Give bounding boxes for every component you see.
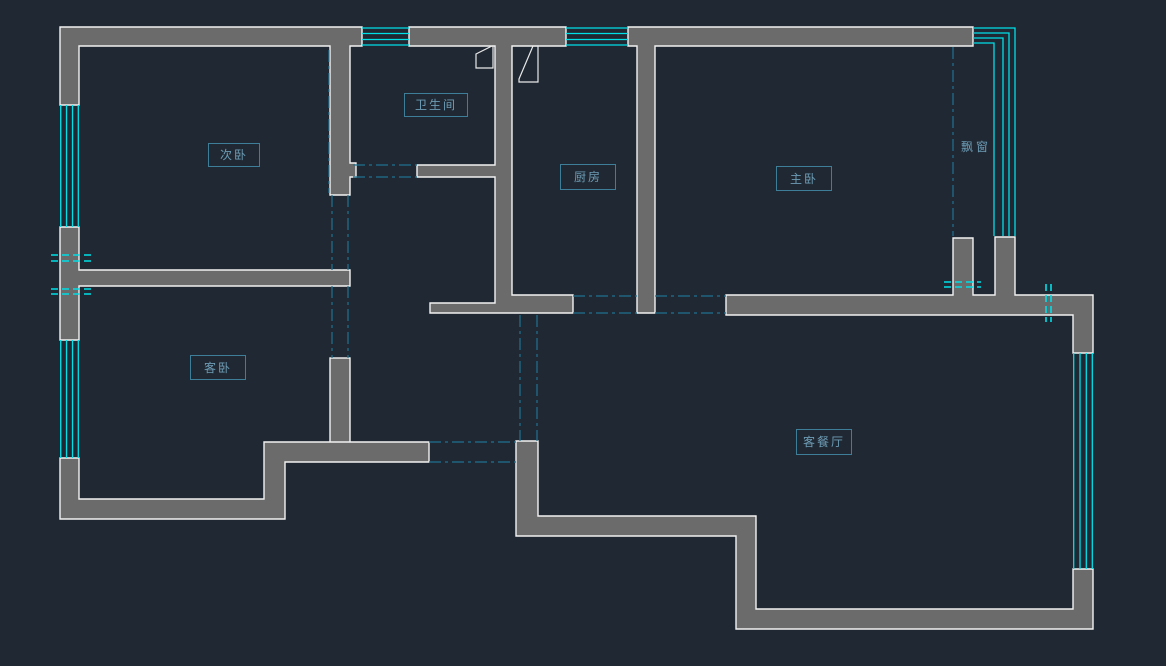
window-bay-master[interactable] bbox=[973, 28, 1015, 236]
wall-master-bottom[interactable] bbox=[726, 237, 1093, 353]
wall-living-bottom[interactable] bbox=[516, 441, 1093, 629]
wall-left-mid[interactable] bbox=[60, 227, 350, 340]
room-label-living-dining[interactable]: 客餐厅 bbox=[796, 429, 852, 455]
casement-symbol-bathroom bbox=[476, 46, 493, 68]
wall-bathroom-kitchen[interactable] bbox=[409, 27, 573, 313]
room-label-kitchen[interactable]: 厨房 bbox=[560, 164, 616, 190]
room-label-bay-window[interactable]: 飘窗 bbox=[958, 138, 994, 156]
casement-symbol-kitchen bbox=[519, 46, 538, 82]
room-label-master-bedroom[interactable]: 主卧 bbox=[776, 166, 832, 191]
wall-top-left[interactable] bbox=[60, 27, 362, 195]
floor-plan-drawing bbox=[0, 0, 1166, 666]
walls-layer[interactable] bbox=[60, 27, 1093, 629]
room-label-bedroom2[interactable]: 次卧 bbox=[208, 143, 260, 167]
window-top-hall[interactable] bbox=[362, 28, 409, 45]
window-top-kitchen[interactable] bbox=[566, 28, 628, 45]
wall-bottom-left[interactable] bbox=[60, 442, 429, 519]
window-left-bedroom2[interactable] bbox=[61, 105, 79, 227]
window-left-guest[interactable] bbox=[61, 340, 79, 458]
wall-guest-east[interactable] bbox=[330, 358, 350, 443]
cad-canvas[interactable]: 次卧 卫生间 厨房 主卧 客卧 客餐厅 飘窗 bbox=[0, 0, 1166, 666]
room-label-guest-bedroom[interactable]: 客卧 bbox=[190, 355, 246, 380]
window-right-living[interactable] bbox=[1074, 353, 1093, 569]
room-label-bathroom[interactable]: 卫生间 bbox=[404, 93, 468, 117]
